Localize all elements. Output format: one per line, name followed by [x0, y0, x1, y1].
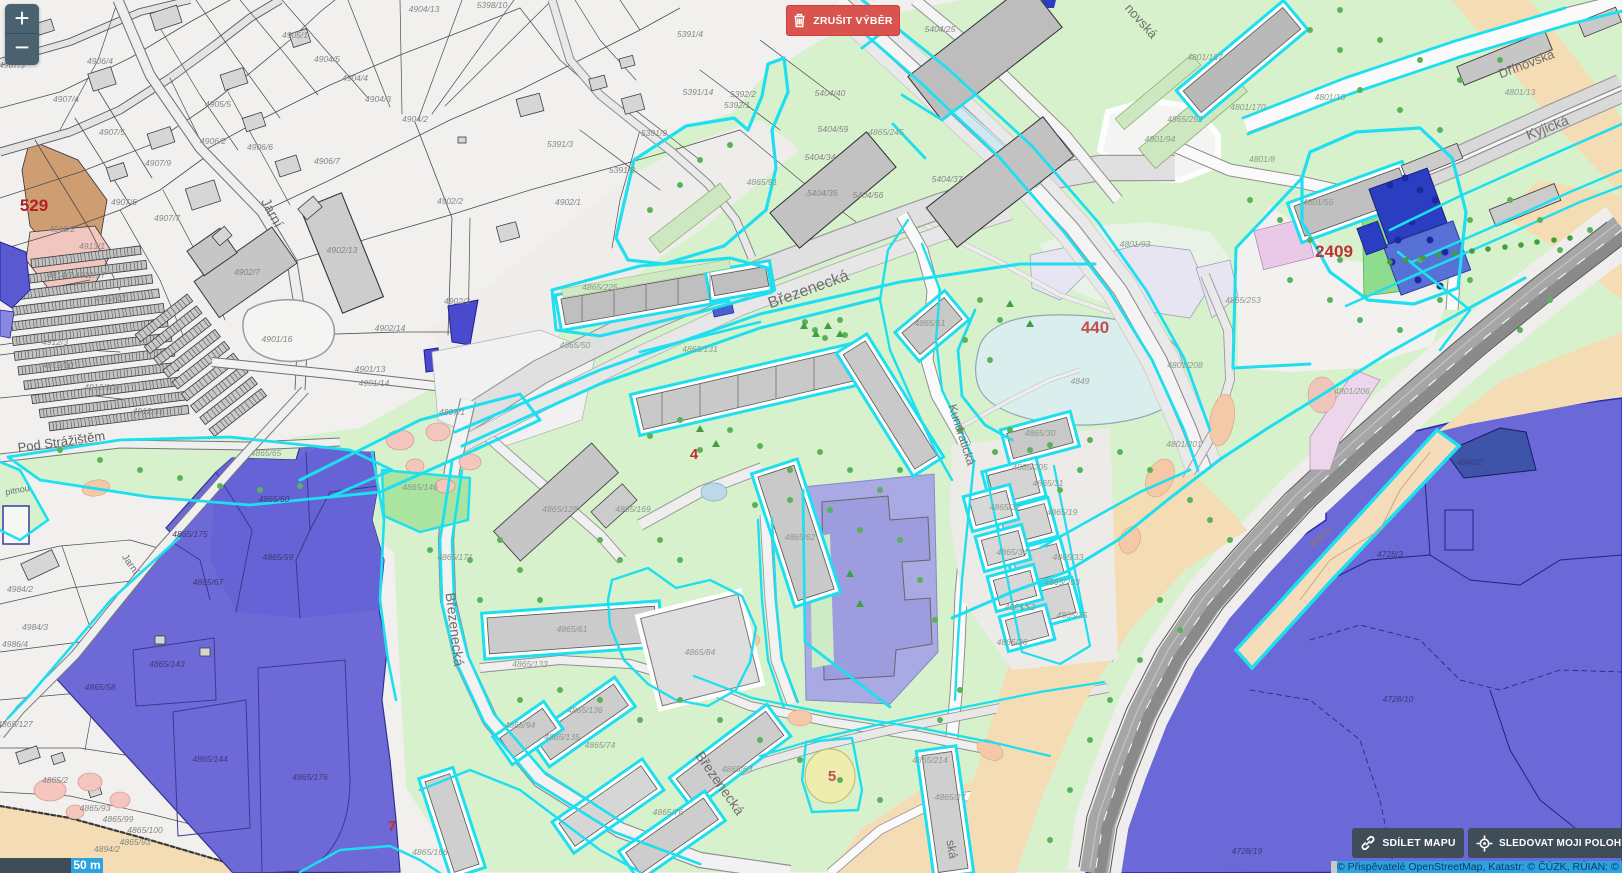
svg-text:4865/225: 4865/225: [582, 282, 618, 292]
svg-text:5392/2: 5392/2: [730, 89, 756, 99]
svg-text:5391/4: 5391/4: [677, 29, 703, 39]
svg-text:4865/2: 4865/2: [42, 775, 68, 785]
svg-text:5391/8: 5391/8: [609, 165, 635, 175]
svg-text:4801/167: 4801/167: [1187, 52, 1223, 62]
svg-text:4865/253: 4865/253: [1225, 295, 1261, 305]
svg-text:5398/10: 5398/10: [477, 0, 508, 10]
svg-text:4902/2: 4902/2: [437, 196, 463, 206]
svg-text:4801/10: 4801/10: [1315, 92, 1346, 102]
svg-text:7: 7: [388, 818, 396, 835]
svg-text:4840/2: 4840/2: [1457, 457, 1483, 467]
svg-text:4865/51: 4865/51: [915, 318, 946, 328]
svg-text:4904/13: 4904/13: [409, 4, 440, 14]
svg-text:4902/7: 4902/7: [234, 267, 260, 277]
svg-text:5404/40: 5404/40: [815, 88, 846, 98]
svg-text:4984/3: 4984/3: [22, 622, 48, 632]
svg-text:5404/37: 5404/37: [932, 174, 963, 184]
svg-text:4905/1: 4905/1: [282, 30, 308, 40]
svg-text:4865/144: 4865/144: [192, 754, 228, 764]
svg-text:4849: 4849: [1071, 376, 1090, 386]
svg-text:4865/59: 4865/59: [263, 552, 294, 562]
svg-text:2409: 2409: [1315, 242, 1353, 261]
svg-text:4865/50: 4865/50: [560, 340, 591, 350]
svg-text:4865/63: 4865/63: [722, 764, 753, 774]
svg-text:4801/13: 4801/13: [1505, 87, 1536, 97]
svg-text:4865/61: 4865/61: [557, 624, 588, 634]
svg-text:4865/60: 4865/60: [259, 494, 290, 504]
svg-text:4904/3: 4904/3: [365, 94, 391, 104]
svg-text:4865/166: 4865/166: [412, 847, 448, 857]
svg-text:4865/65: 4865/65: [251, 448, 282, 458]
svg-text:4907/9: 4907/9: [145, 158, 171, 168]
svg-text:4865/31: 4865/31: [1033, 478, 1064, 488]
svg-text:529: 529: [20, 196, 48, 215]
svg-text:4907/6: 4907/6: [111, 197, 137, 207]
svg-text:4865/133: 4865/133: [512, 659, 548, 669]
svg-text:4865/58: 4865/58: [85, 682, 116, 692]
svg-text:4913/2: 4913/2: [49, 224, 75, 234]
svg-text:4912/31: 4912/31: [133, 406, 164, 416]
svg-text:5404/34: 5404/34: [805, 152, 836, 162]
svg-text:4894/2: 4894/2: [94, 844, 120, 854]
svg-text:4865/127: 4865/127: [0, 719, 33, 729]
svg-text:4801/93: 4801/93: [1120, 239, 1151, 249]
svg-text:4865/27: 4865/27: [935, 792, 966, 802]
svg-text:4906/2: 4906/2: [200, 136, 226, 146]
svg-text:4865/176: 4865/176: [292, 772, 328, 782]
svg-text:5391/3: 5391/3: [547, 139, 573, 149]
svg-text:4865/135: 4865/135: [544, 732, 580, 742]
svg-text:4912/3: 4912/3: [42, 337, 68, 347]
svg-text:4986/4: 4986/4: [2, 639, 28, 649]
svg-text:4: 4: [690, 446, 699, 463]
svg-text:4912/50: 4912/50: [43, 360, 74, 370]
svg-text:5404/56: 5404/56: [853, 190, 884, 200]
svg-text:4865/128: 4865/128: [542, 504, 578, 514]
svg-text:4801/201: 4801/201: [1166, 439, 1202, 449]
svg-text:4865/91: 4865/91: [747, 177, 778, 187]
svg-text:4865/93: 4865/93: [80, 803, 111, 813]
svg-text:5391/9: 5391/9: [641, 128, 667, 138]
svg-text:.5404/35: .5404/35: [804, 188, 837, 198]
svg-text:4865/214: 4865/214: [912, 755, 948, 765]
svg-text:4801/170: 4801/170: [1230, 102, 1266, 112]
svg-text:4865/252: 4865/252: [1167, 114, 1203, 124]
svg-text:5391/14: 5391/14: [683, 87, 714, 97]
svg-text:4801/208: 4801/208: [1167, 360, 1203, 370]
svg-text:440: 440: [1081, 318, 1109, 337]
svg-text:4865/205: 4865/205: [1012, 462, 1048, 472]
svg-text:5: 5: [828, 768, 836, 785]
svg-text:4865/30: 4865/30: [1025, 428, 1056, 438]
svg-text:4902/13: 4902/13: [327, 245, 358, 255]
svg-text:4912/13: 4912/13: [95, 293, 126, 303]
svg-text:4912/17: 4912/17: [75, 270, 106, 280]
svg-text:4865/35: 4865/35: [1057, 610, 1088, 620]
svg-text:4865/94: 4865/94: [505, 720, 536, 730]
svg-text:4907/4: 4907/4: [53, 94, 79, 104]
svg-text:4865/67: 4865/67: [193, 577, 224, 587]
svg-text:4904/2: 4904/2: [402, 114, 428, 124]
svg-text:4865/34: 4865/34: [997, 547, 1028, 557]
svg-text:4865/62: 4865/62: [785, 532, 816, 542]
svg-text:4865/36: 4865/36: [997, 637, 1028, 647]
svg-text:4865/33: 4865/33: [1053, 552, 1084, 562]
svg-text:4801/8: 4801/8: [1249, 154, 1275, 164]
svg-text:4905/5: 4905/5: [205, 99, 231, 109]
svg-text:4865/245: 4865/245: [868, 127, 904, 137]
svg-text:4865/52: 4865/52: [1005, 602, 1036, 612]
svg-text:4865/136: 4865/136: [567, 705, 603, 715]
svg-text:4902/3: 4902/3: [444, 296, 470, 306]
svg-text:4904/5: 4904/5: [314, 54, 340, 64]
svg-text:5404/25: 5404/25: [925, 24, 956, 34]
svg-text:4865/100: 4865/100: [127, 825, 163, 835]
svg-text:4865/175: 4865/175: [172, 529, 208, 539]
svg-text:4865/99: 4865/99: [103, 814, 134, 824]
svg-text:4865/146: 4865/146: [402, 482, 438, 492]
svg-text:4865/84: 4865/84: [685, 647, 716, 657]
svg-text:4728/19: 4728/19: [1232, 846, 1263, 856]
svg-text:4901/14: 4901/14: [359, 378, 390, 388]
svg-text:4912/108: 4912/108: [84, 382, 120, 392]
svg-text:4897/1: 4897/1: [439, 407, 465, 417]
svg-text:4907/5: 4907/5: [99, 127, 125, 137]
svg-text:4865/131: 4865/131: [682, 344, 718, 354]
svg-text:4914/2: 4914/2: [47, 270, 73, 280]
svg-text:4906/4: 4906/4: [87, 56, 113, 66]
svg-text:4728/3: 4728/3: [1377, 549, 1403, 559]
svg-text:4906/7: 4906/7: [314, 156, 340, 166]
svg-text:4801/94: 4801/94: [1145, 134, 1176, 144]
svg-text:4902/14: 4902/14: [375, 323, 406, 333]
svg-text:4984/2: 4984/2: [7, 584, 33, 594]
svg-text:4801/56: 4801/56: [1303, 197, 1334, 207]
svg-text:4865/93: 4865/93: [120, 837, 151, 847]
svg-text:4904/4: 4904/4: [342, 73, 368, 83]
svg-text:4728/10: 4728/10: [1383, 694, 1414, 704]
svg-text:4906/6: 4906/6: [247, 142, 273, 152]
svg-text:4865/76: 4865/76: [653, 807, 684, 817]
svg-text:5392/1: 5392/1: [724, 100, 750, 110]
svg-text:4901/16: 4901/16: [262, 334, 293, 344]
svg-text:4865/169: 4865/169: [615, 504, 651, 514]
svg-text:4865/171: 4865/171: [437, 552, 473, 562]
svg-text:4907/7: 4907/7: [154, 213, 180, 223]
svg-text:4901/13: 4901/13: [355, 364, 386, 374]
svg-text:5404/59: 5404/59: [818, 124, 849, 134]
svg-text:4865/74: 4865/74: [585, 740, 616, 750]
svg-text:4902/1: 4902/1: [555, 197, 581, 207]
svg-text:4865/143: 4865/143: [149, 659, 185, 669]
svg-text:4913/1: 4913/1: [79, 241, 105, 251]
svg-text:4904/13: 4904/13: [745, 0, 776, 2]
svg-text:4801/206: 4801/206: [1334, 386, 1370, 396]
svg-text:4865/32: 4865/32: [990, 502, 1021, 512]
svg-text:4865/19: 4865/19: [1047, 507, 1078, 517]
svg-text:4865/203: 4865/203: [1044, 577, 1080, 587]
